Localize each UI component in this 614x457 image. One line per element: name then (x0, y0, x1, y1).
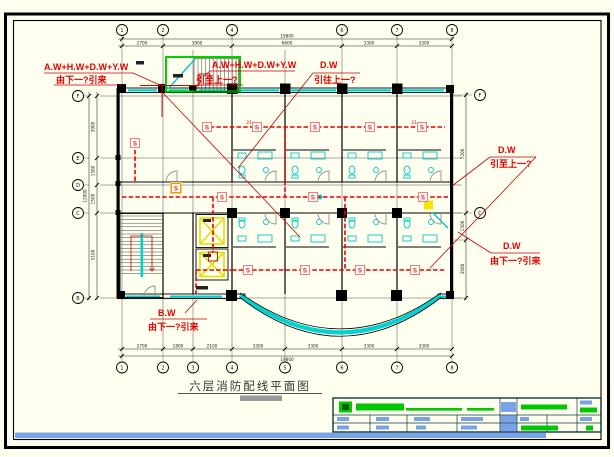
annotation-mid-top-2: 引至上一? (196, 74, 238, 85)
dim-bottom-4: 3300 (253, 344, 264, 349)
smoke-detector: S (205, 123, 210, 131)
grid-bubble: 1 (120, 28, 123, 34)
grid-bubble: 8 (450, 28, 453, 34)
stairwell (120, 214, 163, 298)
title-block (15, 398, 601, 438)
grid-bubble: 5 (283, 366, 286, 372)
dim-left-4: 5100 (91, 249, 96, 260)
plan-title-text: 六层消防配线平面图 (189, 379, 311, 393)
smoke-detector: S (358, 266, 363, 274)
grid-bubble: 6 (340, 366, 343, 372)
dim-top-2: 3900 (192, 41, 203, 46)
dimensions-top: 2700 3900 6600 3300 3300 19800 (118, 34, 454, 51)
dim-top-1: 2700 (137, 41, 148, 46)
dimensions-right: 7200 1500 3600 F C (452, 90, 486, 301)
drawing-title: 六层消防配线平面图 (178, 379, 322, 401)
grid-bubbles-bottom: 1 2 3 4 5 6 7 8 (117, 362, 458, 373)
dim-right-2: 1500 (460, 220, 465, 231)
dim-bottom-2: 1800 (173, 344, 184, 349)
annotation-mid-top-1: A.W+H.W+D.W+Y.W (212, 60, 297, 70)
grid-bubble: 4 (230, 28, 233, 34)
dim-bottom-1: 2700 (137, 344, 148, 349)
title-underline-bar (240, 396, 282, 402)
dim-top-4: 3300 (364, 41, 375, 46)
smoke-detector: S (246, 266, 251, 274)
smoke-detector: S (255, 123, 260, 131)
grid-bubble: 4 (230, 366, 233, 372)
grid-bubble: 6 (340, 28, 343, 34)
dim-bottom-7: 3300 (419, 344, 430, 349)
dim-top-overall: 19800 (280, 34, 294, 39)
bathroom-south (238, 218, 272, 242)
annotation-bw-1: B.W (158, 308, 176, 318)
grid-bubble: 1 (120, 366, 123, 372)
smoke-detector: S (420, 123, 425, 131)
smoke-detector: S (220, 193, 225, 201)
annotation-left-top-1: A.W+H.W+D.W+Y.W (44, 62, 129, 72)
dim-bottom-3: 2100 (207, 344, 218, 349)
dim-top-3: 6600 (282, 41, 293, 46)
grid-bubble: 2 (161, 28, 164, 34)
company-name-bar (356, 404, 404, 411)
dim-right-1: 7200 (460, 148, 465, 159)
bathroom-north (238, 152, 272, 178)
annotation-dw-right-top-2: 引至上一? (490, 158, 532, 169)
grid-bubble: D (76, 183, 80, 189)
grid-bubble: 7 (395, 366, 398, 372)
dimensions-bottom: 2700 1800 2100 3300 3300 3300 3300 19800 (118, 344, 454, 363)
annotation-dw-right-bottom-2: 由下一?引来 (490, 255, 541, 266)
detector-count: 21 (246, 120, 252, 126)
grid-bubble: F (77, 94, 80, 100)
dim-top-5: 3300 (419, 41, 430, 46)
annotation-dw-mid-1: D.W (320, 60, 338, 70)
dim-bottom-6: 3300 (364, 344, 375, 349)
detector-count: 21 (411, 120, 417, 126)
floor-plan-drawing: 2700 3900 6600 3300 3300 19800 1 2 4 6 7… (0, 0, 614, 457)
grid-bubble: F (479, 93, 482, 99)
smoke-detector: S (313, 123, 318, 131)
dim-bottom-overall: 19800 (280, 357, 294, 362)
grid-bubble: C (76, 211, 80, 217)
grid-bubble: B (76, 296, 80, 302)
dim-right-3: 3600 (460, 263, 465, 274)
dim-bottom-5: 3300 (308, 344, 319, 349)
annotation-dw-right-bottom-1: D.W (503, 241, 521, 251)
annotation-left-top-2: 由下一?引来 (56, 74, 107, 85)
dim-left-1: 3900 (91, 121, 96, 132)
smoke-detector: S (133, 139, 138, 147)
grid-bubble: 2 (161, 366, 164, 372)
smoke-detector: S (421, 193, 426, 201)
dim-left-2: 1500 (91, 165, 96, 176)
smoke-detector: S (174, 184, 179, 192)
smoke-detector: S (368, 123, 373, 131)
grid-bubble: 3 (191, 366, 194, 372)
dimensions-left: 3900 1500 1500 5100 12000 (83, 92, 100, 300)
grid-bubble: 8 (450, 366, 453, 372)
smoke-detector: S (413, 266, 418, 274)
annotation-bw-2: 由下一?引来 (148, 321, 199, 332)
dim-left-overall: 12000 (83, 189, 88, 203)
revision-bar (15, 433, 546, 439)
cad-sheet: 2700 3900 6600 3300 3300 19800 1 2 4 6 7… (0, 0, 614, 457)
annotation-dw-mid-2: 引往上一? (314, 74, 356, 85)
dim-left-3: 1500 (91, 193, 96, 204)
annotation-dw-right-top-1: D.W (498, 145, 516, 155)
structural-grid (100, 50, 462, 346)
smoke-detector: S (311, 193, 316, 201)
smoke-detector: S (303, 266, 308, 274)
grid-bubble: E (76, 156, 79, 162)
grid-bubble: 7 (395, 28, 398, 34)
